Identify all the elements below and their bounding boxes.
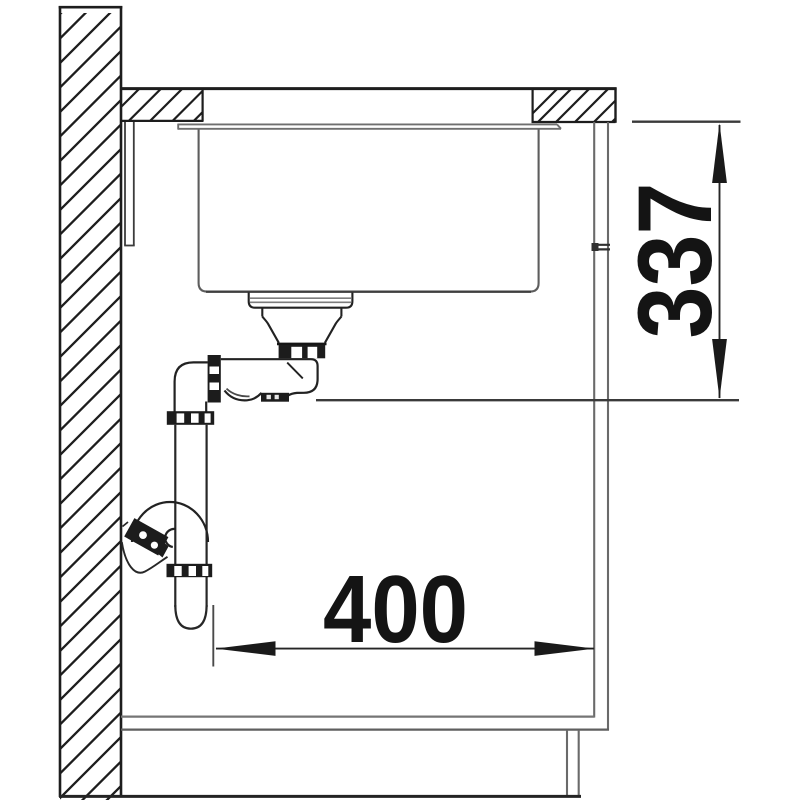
- svg-text:337: 337: [617, 183, 734, 339]
- svg-text:400: 400: [323, 556, 468, 663]
